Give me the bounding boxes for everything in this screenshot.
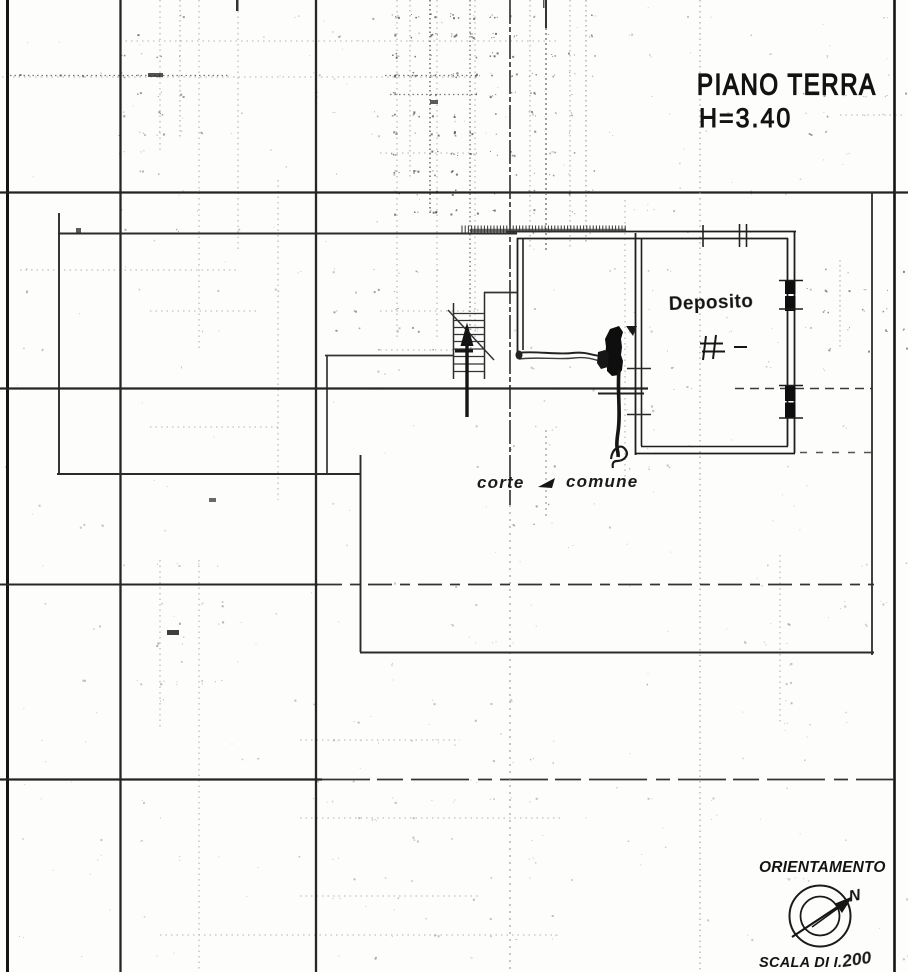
svg-text:ORIENTAMENTO: ORIENTAMENTO (759, 859, 886, 876)
svg-text:200: 200 (840, 947, 873, 971)
svg-text:Deposito: Deposito (668, 291, 753, 315)
svg-text:PIANO TERRA: PIANO TERRA (697, 68, 877, 101)
svg-text:H=3.40: H=3.40 (699, 102, 792, 133)
svg-text:corte: corte (477, 473, 525, 492)
svg-text:comune: comune (566, 472, 638, 491)
svg-text:SCALA DI I.: SCALA DI I. (759, 955, 842, 971)
